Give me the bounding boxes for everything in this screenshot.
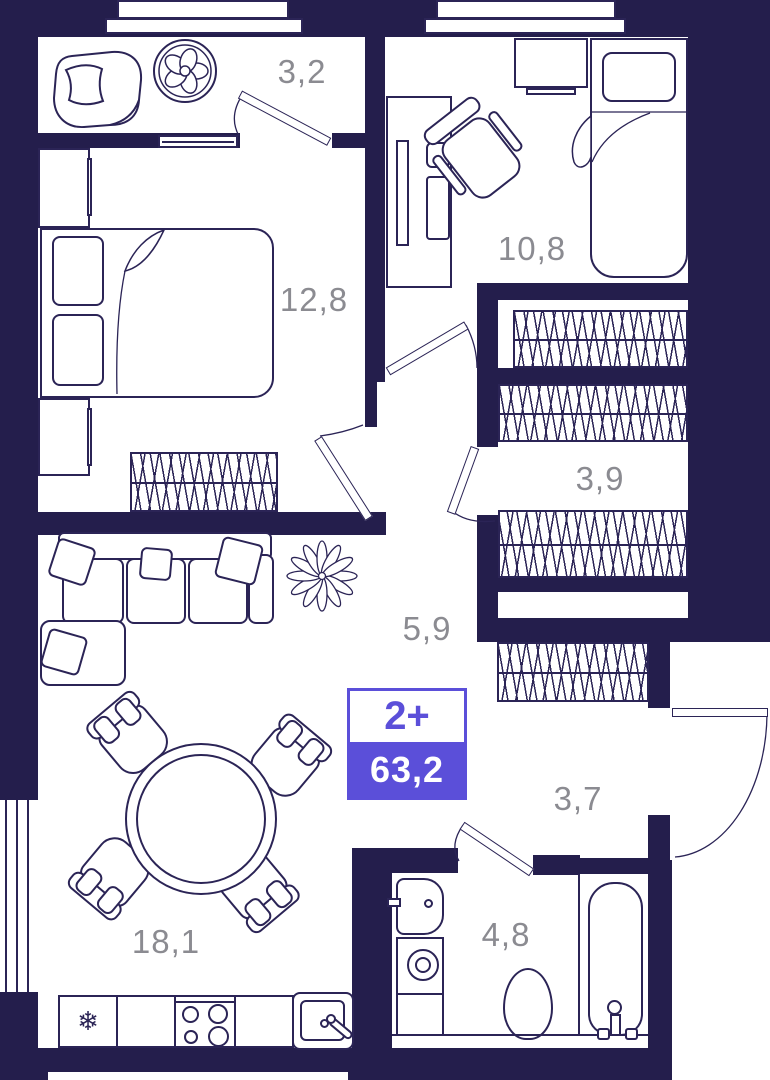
door-arc [466,325,477,368]
window-side-line [16,800,18,992]
desk-item [426,176,450,240]
entry-door-leaf [672,708,768,717]
nightstand [38,148,90,228]
room-label-bedroom2: 10,8 [486,231,578,267]
room-label-wardrobe: 3,9 [554,461,646,497]
wall-entry-jamb-upper [648,642,670,708]
bathtub-tap-handle [625,1028,638,1040]
toilet-icon [503,968,553,1040]
monitor-icon [396,140,409,246]
loggia-window [158,135,238,148]
bathtub-tap-handle [597,1028,610,1040]
wardrobe-icon [498,510,688,578]
wardrobe-icon [513,310,688,368]
pillow-icon [52,236,104,306]
burner-icon [184,1030,198,1044]
room-label-hallway: 5,9 [381,611,473,647]
wall-bathroom-left [352,860,392,1048]
window-left-top [105,18,303,34]
door-leaf-bedroom2 [386,321,469,375]
door-leaf-wardrobe [447,446,479,515]
pillow-icon [52,314,104,386]
wall-closet-top [477,283,712,300]
wall-bedroom-right [365,37,385,382]
wall-hall-right [477,578,498,642]
plant-icon [282,538,362,614]
wall-left-lower [0,992,38,1048]
wardrobe-icon [130,452,278,512]
snowflake-icon: ❄ [77,1006,99,1037]
nightstand-handle [87,408,92,466]
wardrobe-icon [497,642,649,702]
entry-door-arc [675,714,767,857]
window-sill-left [117,0,289,19]
wall-entry-jamb-lower [648,815,670,860]
burner-icon [208,1026,229,1047]
wall-bedroom-right-step [365,382,377,427]
wall-corridor-top [477,618,712,642]
sofa-pillow-icon [139,547,174,582]
kitchen-counter [234,995,294,1048]
burner-icon [208,1004,228,1024]
wall-bathroom-top-right [533,855,580,875]
total-area-label: 63,2 [350,742,464,797]
window-right-top [424,18,626,34]
door-arc [320,425,363,436]
kitchen-counter [116,995,176,1048]
apartment-badge: 2+ 63,2 [347,688,467,800]
bathtub-tap-dot [607,1000,622,1015]
washer-drum-inner [415,957,431,973]
room-label-entry-hall: 3,7 [532,781,624,817]
potted-plant-icon [150,36,220,106]
door-leaf-bedroom [314,436,373,521]
wall-right-outer [688,37,770,642]
window-sill-right [436,0,616,19]
floor-plan[interactable]: ❄ [0,0,770,1080]
bottom-edge-strip [48,1072,348,1080]
burner-icon [182,1006,199,1023]
blanket-corner [572,116,591,167]
bathtub-tap [610,1014,621,1036]
fridge-icon: ❄ [58,995,118,1048]
loggia-window-line [162,141,234,143]
sink-tap-dot [424,899,433,908]
room-label-kitchen-living: 18,1 [120,924,212,960]
door-leaf-bathroom [459,822,534,876]
wall-wardrobe-bottom [477,578,690,592]
nightstand [38,398,90,476]
bathroom-cabinet [396,993,444,1036]
pillow-icon [602,52,676,102]
wardrobe-icon [498,384,688,442]
room-label-bathroom: 4,8 [460,917,552,953]
sink-tap [387,898,401,907]
dining-table-top [136,754,266,884]
room-label-loggia: 3,2 [256,54,348,90]
wall-wardrobe-left [477,515,498,578]
wall-left-upper [0,37,38,800]
armchair-icon [44,48,148,132]
cabinet-handle [526,88,576,95]
faucet-knob [326,1014,336,1024]
cabinet [514,38,588,88]
stove-edge-line [176,1001,234,1003]
bathroom-sink-icon [396,878,444,935]
wall-bathtub-top [578,858,648,874]
bathtub-partition-line [578,874,580,1036]
wall-under-closet [477,368,690,384]
room-label-bedroom: 12,8 [268,282,360,318]
apartment-type-label: 2+ [350,691,464,742]
window-side-line [5,800,7,992]
window-side-line [27,800,29,992]
nightstand-handle [87,158,92,216]
wall-bathroom-right [648,860,672,1080]
